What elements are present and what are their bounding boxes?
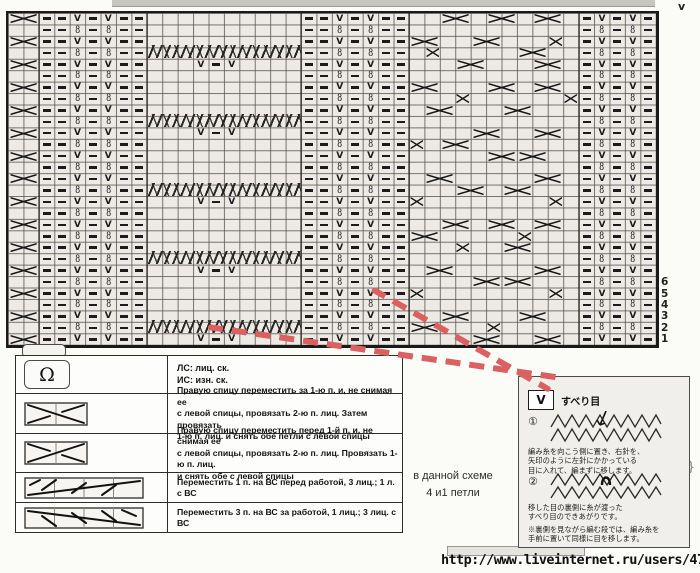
purl-dash-mark [209, 128, 224, 139]
purl-dash-mark [116, 185, 131, 196]
purl-dash-mark [317, 105, 332, 116]
slip-chain-mark: V [101, 105, 116, 116]
cable-braid-mark [147, 251, 301, 264]
slip-chain-mark: 8 [334, 299, 346, 310]
cross-2-front-icon [24, 441, 88, 465]
purl-dash-mark [347, 36, 362, 47]
purl-dash-mark [347, 276, 362, 287]
purl-dash-mark [39, 219, 54, 230]
purl-dash-mark [378, 219, 393, 230]
purl-dash-mark [579, 24, 594, 35]
slip-chain-mark: V [594, 36, 609, 47]
slip-chain-mark: V [70, 13, 85, 24]
slip-chain-mark: V [101, 82, 116, 93]
purl-dash-mark [347, 82, 362, 93]
purl-dash-mark [39, 93, 54, 104]
purl-dash-mark [39, 36, 54, 47]
purl-dash-mark [131, 253, 146, 264]
purl-dash-mark [610, 13, 625, 24]
purl-dash-mark [301, 128, 316, 139]
slip-chain-mark: V [70, 105, 85, 116]
purl-dash-mark [116, 139, 131, 150]
cross-stitch-mark [440, 139, 471, 150]
purl-dash-mark [641, 93, 656, 104]
purl-dash-mark [641, 265, 656, 276]
slip-chain-mark: 8 [596, 276, 608, 287]
purl-dash-mark [610, 47, 625, 58]
purl-dash-mark [317, 128, 332, 139]
slip-chain-mark: V [594, 82, 609, 93]
purl-dash-mark [317, 93, 332, 104]
purl-dash-mark [85, 208, 100, 219]
cross-stitch-mark [440, 311, 471, 322]
purl-dash-mark [579, 265, 594, 276]
purl-dash-mark [116, 276, 131, 287]
purl-dash-mark [301, 59, 316, 70]
slip-chain-mark: 8 [102, 24, 114, 35]
slip-chain-mark: V [70, 173, 85, 184]
purl-dash-mark [54, 139, 69, 150]
slip-chain-mark: V [363, 13, 378, 24]
edge-cross-mark [8, 59, 39, 70]
slip-chain-mark: V [363, 150, 378, 161]
slip-chain-mark: V [101, 242, 116, 253]
slip-chain-mark: V [101, 173, 116, 184]
slip-chain-mark: V [70, 311, 85, 322]
purl-dash-mark [347, 59, 362, 70]
purl-dash-mark [610, 288, 625, 299]
slip-chain-mark: V [70, 265, 85, 276]
purl-dash-mark [131, 128, 146, 139]
purl-dash-mark [641, 185, 656, 196]
slip-chain-mark: 8 [596, 185, 608, 196]
purl-dash-mark [347, 242, 362, 253]
edge-cross-mark [8, 128, 39, 139]
purl-dash-mark [641, 311, 656, 322]
purl-dash-mark [301, 47, 316, 58]
slip-chain-mark: V [332, 265, 347, 276]
purl-dash-mark [378, 128, 393, 139]
purl-dash-mark [301, 13, 316, 24]
purl-dash-mark [39, 311, 54, 322]
purl-dash-mark [85, 150, 100, 161]
slip-chain-mark: V [625, 173, 640, 184]
purl-dash-mark [394, 70, 409, 81]
purl-dash-mark [378, 334, 393, 345]
slip-chain-mark: V [101, 150, 116, 161]
cross-stitch-mark [548, 288, 563, 299]
section-divider-line [300, 13, 302, 345]
purl-dash-mark [579, 231, 594, 242]
purl-dash-mark [209, 265, 224, 276]
purl-dash-mark [610, 219, 625, 230]
purl-dash-mark [394, 36, 409, 47]
slip-chain-mark: 8 [334, 185, 346, 196]
purl-dash-mark [610, 311, 625, 322]
slip-chain-mark: 8 [364, 322, 376, 333]
cross-stitch-mark [409, 196, 424, 207]
purl-dash-mark [131, 139, 146, 150]
purl-dash-mark [301, 70, 316, 81]
cross-stitch-mark [471, 276, 502, 287]
purl-dash-mark [579, 196, 594, 207]
cross-stitch-mark [425, 105, 456, 116]
purl-dash-mark [54, 196, 69, 207]
purl-dash-mark [131, 24, 146, 35]
edge-cross-mark [8, 288, 39, 299]
purl-dash-mark [39, 196, 54, 207]
cable-3-over-1-icon [24, 507, 144, 529]
purl-dash-mark [116, 105, 131, 116]
purl-dash-mark [641, 59, 656, 70]
purl-dash-mark [131, 276, 146, 287]
purl-dash-mark [610, 70, 625, 81]
purl-dash-mark [116, 299, 131, 310]
purl-dash-mark [394, 128, 409, 139]
slip-chain-mark: 8 [71, 47, 83, 58]
slip-chain-mark: 8 [71, 231, 83, 242]
purl-dash-mark [301, 150, 316, 161]
purl-dash-mark [39, 288, 54, 299]
purl-dash-mark [85, 139, 100, 150]
purl-dash-mark [39, 299, 54, 310]
slip-chain-mark: 8 [334, 93, 346, 104]
slip-chain-mark: 8 [71, 116, 83, 127]
purl-dash-mark [579, 105, 594, 116]
slip-chain-mark: 8 [102, 299, 114, 310]
slip-v-mark: V [193, 128, 208, 139]
purl-dash-mark [579, 116, 594, 127]
slip-chain-mark: 8 [334, 231, 346, 242]
loop-stitch-symbol: Ω [16, 356, 168, 393]
slip-chain-mark: 8 [627, 24, 639, 35]
purl-dash-mark [301, 299, 316, 310]
row-number-label: 3 [661, 311, 679, 322]
section-divider-line [578, 13, 580, 345]
purl-dash-mark [579, 13, 594, 24]
purl-dash-mark [85, 276, 100, 287]
slip-chain-mark: 8 [596, 231, 608, 242]
cross-stitch-mark [533, 13, 564, 24]
slip-chain-mark: V [363, 265, 378, 276]
purl-dash-mark [131, 231, 146, 242]
slip-chain-mark: 8 [627, 185, 639, 196]
slip-chain-mark: V [625, 311, 640, 322]
legend-row: Переместить 3 п. на ВС за работой, 1 лиц… [16, 502, 402, 532]
purl-dash-mark [394, 59, 409, 70]
slip-chain-mark: V [332, 105, 347, 116]
purl-dash-mark [641, 13, 656, 24]
purl-dash-mark [610, 93, 625, 104]
purl-dash-mark [317, 253, 332, 264]
purl-dash-mark [347, 334, 362, 345]
purl-dash-mark [641, 276, 656, 287]
purl-dash-mark [317, 36, 332, 47]
purl-dash-mark [347, 219, 362, 230]
purl-dash-mark [610, 265, 625, 276]
purl-dash-mark [378, 173, 393, 184]
purl-dash-mark [116, 47, 131, 58]
purl-dash-mark [116, 265, 131, 276]
slip-chain-mark: 8 [102, 253, 114, 264]
purl-dash-mark [579, 185, 594, 196]
purl-dash-mark [131, 185, 146, 196]
purl-dash-mark [579, 36, 594, 47]
purl-dash-mark [54, 299, 69, 310]
purl-dash-mark [641, 128, 656, 139]
slip-chain-mark: 8 [334, 70, 346, 81]
purl-dash-mark [610, 105, 625, 116]
slip-chain-mark: 8 [334, 276, 346, 287]
scheme-note: в данной схеме 4 и1 петли [396, 468, 510, 501]
section-divider-line [146, 13, 148, 345]
purl-dash-mark [301, 242, 316, 253]
legend-text: Правую спицу переместить перед 1-й п. и,… [168, 434, 402, 472]
purl-dash-mark [116, 219, 131, 230]
cross-stitch-mark [409, 288, 424, 299]
cable-1-over-3-symbol [16, 473, 168, 502]
purl-dash-mark [39, 150, 54, 161]
slip-chain-mark: 8 [627, 231, 639, 242]
slip-chain-mark: V [101, 265, 116, 276]
slip-chain-mark: 8 [364, 185, 376, 196]
purl-dash-mark [394, 139, 409, 150]
slip-chain-mark: V [594, 311, 609, 322]
purl-dash-mark [378, 276, 393, 287]
edge-cross-mark [8, 36, 39, 47]
slip-chain-mark: 8 [596, 253, 608, 264]
purl-dash-mark [39, 128, 54, 139]
cross-stitch-mark [517, 150, 548, 161]
slip-chain-mark: V [101, 13, 116, 24]
purl-dash-mark [610, 173, 625, 184]
slip-chain-mark: 8 [334, 162, 346, 173]
slip-v-mark: V [224, 59, 239, 70]
edge-cross-mark [8, 219, 39, 230]
slip-chain-mark: 8 [102, 162, 114, 173]
purl-dash-mark [579, 82, 594, 93]
slip-chain-mark: 8 [364, 47, 376, 58]
cross-stitch-mark [517, 231, 532, 242]
purl-dash-mark [54, 311, 69, 322]
purl-dash-mark [610, 59, 625, 70]
purl-dash-mark [579, 242, 594, 253]
purl-dash-mark [394, 265, 409, 276]
slip-chain-mark: V [363, 173, 378, 184]
purl-dash-mark [579, 253, 594, 264]
edge-cross-mark [8, 265, 39, 276]
purl-dash-mark [116, 253, 131, 264]
cross-stitch-mark [548, 196, 563, 207]
purl-dash-mark [301, 36, 316, 47]
purl-dash-mark [394, 116, 409, 127]
purl-dash-mark [131, 208, 146, 219]
purl-dash-mark [378, 24, 393, 35]
purl-dash-mark [301, 139, 316, 150]
row-number-label: 4 [661, 299, 679, 310]
purl-dash-mark [131, 13, 146, 24]
purl-dash-mark [301, 116, 316, 127]
purl-dash-mark [394, 185, 409, 196]
slip-chain-mark: V [363, 311, 378, 322]
purl-dash-mark [394, 47, 409, 58]
edge-cross-mark [8, 242, 39, 253]
purl-dash-mark [116, 288, 131, 299]
purl-dash-mark [394, 231, 409, 242]
slip-chain-mark: 8 [364, 162, 376, 173]
purl-dash-mark [378, 265, 393, 276]
purl-dash-mark [131, 311, 146, 322]
purl-dash-mark [641, 47, 656, 58]
slip-chain-mark: 8 [364, 276, 376, 287]
slip-chain-mark: 8 [71, 185, 83, 196]
slip-chain-mark: V [363, 334, 378, 345]
purl-dash-mark [610, 139, 625, 150]
purl-dash-mark [116, 82, 131, 93]
purl-dash-mark [54, 116, 69, 127]
slip-chain-mark: V [625, 219, 640, 230]
purl-dash-mark [39, 173, 54, 184]
purl-dash-mark [54, 105, 69, 116]
slip-chain-mark: V [594, 150, 609, 161]
slip-v-mark: V [224, 265, 239, 276]
slip-chain-mark: 8 [334, 116, 346, 127]
purl-dash-mark [317, 311, 332, 322]
purl-dash-mark [610, 24, 625, 35]
purl-dash-mark [54, 128, 69, 139]
purl-dash-mark [131, 162, 146, 173]
purl-dash-mark [394, 93, 409, 104]
purl-dash-mark [131, 150, 146, 161]
purl-dash-mark [347, 253, 362, 264]
purl-dash-mark [641, 253, 656, 264]
slip-chain-mark: 8 [71, 162, 83, 173]
legend-text: Переместить 3 п. на ВС за работой, 1 лиц… [168, 503, 402, 532]
purl-dash-mark [579, 173, 594, 184]
purl-dash-mark [85, 231, 100, 242]
loop-stitch-icon: Ω [24, 360, 70, 389]
slip-chain-mark: V [101, 334, 116, 345]
cross-stitch-mark [486, 219, 517, 230]
purl-dash-mark [209, 59, 224, 70]
purl-dash-mark [394, 162, 409, 173]
slip-stitch-symbol-box: V [528, 390, 554, 410]
slip-chain-mark: V [101, 196, 116, 207]
slip-chain-mark: V [332, 196, 347, 207]
purl-dash-mark [394, 322, 409, 333]
purl-dash-mark [39, 253, 54, 264]
slip-chain-mark: V [363, 59, 378, 70]
purl-dash-mark [39, 208, 54, 219]
slip-chain-mark: V [70, 334, 85, 345]
slip-chain-mark: 8 [71, 299, 83, 310]
purl-dash-mark [85, 311, 100, 322]
purl-dash-mark [317, 150, 332, 161]
slip-chain-mark: 8 [334, 47, 346, 58]
slip-chain-mark: V [101, 288, 116, 299]
slip-chain-mark: V [363, 196, 378, 207]
purl-dash-mark [131, 219, 146, 230]
purl-dash-mark [85, 13, 100, 24]
purl-dash-mark [394, 288, 409, 299]
purl-dash-mark [610, 82, 625, 93]
purl-dash-mark [317, 196, 332, 207]
purl-dash-mark [301, 196, 316, 207]
purl-dash-mark [579, 150, 594, 161]
purl-dash-mark [378, 116, 393, 127]
purl-dash-mark [39, 139, 54, 150]
slip-chain-mark: 8 [102, 47, 114, 58]
cross-stitch-mark [502, 242, 533, 253]
purl-dash-mark [394, 196, 409, 207]
slip-chain-mark: V [70, 219, 85, 230]
purl-dash-mark [317, 82, 332, 93]
stitch-illustration-2 [549, 471, 663, 501]
slip-chain-mark: 8 [71, 93, 83, 104]
cross-stitch-mark [409, 139, 424, 150]
purl-dash-mark [301, 82, 316, 93]
slip-chain-mark: 8 [364, 231, 376, 242]
purl-dash-mark [378, 105, 393, 116]
slip-chain-mark: 8 [627, 299, 639, 310]
purl-dash-mark [54, 162, 69, 173]
slip-chain-mark: V [332, 219, 347, 230]
slip-chain-mark: 8 [364, 208, 376, 219]
slip-chain-mark: V [625, 150, 640, 161]
purl-dash-mark [610, 128, 625, 139]
cross-stitch-mark [533, 219, 564, 230]
purl-dash-mark [301, 173, 316, 184]
purl-dash-mark [378, 185, 393, 196]
purl-dash-mark [394, 253, 409, 264]
purl-dash-mark [394, 219, 409, 230]
purl-dash-mark [378, 139, 393, 150]
purl-dash-mark [641, 242, 656, 253]
slip-chain-mark: 8 [71, 24, 83, 35]
slip-chain-mark: V [70, 36, 85, 47]
purl-dash-mark [347, 288, 362, 299]
purl-dash-mark [378, 150, 393, 161]
cross-stitch-mark [486, 13, 517, 24]
purl-dash-mark [641, 288, 656, 299]
cross-stitch-mark [563, 93, 578, 104]
legend-text: Переместить 1 п. на ВС перед работой, 3 … [168, 473, 402, 502]
scan-cutoff-strip [112, 0, 655, 7]
purl-dash-mark [39, 265, 54, 276]
purl-dash-mark [317, 13, 332, 24]
slip-chain-mark: V [363, 128, 378, 139]
purl-dash-mark [301, 253, 316, 264]
purl-dash-mark [378, 82, 393, 93]
purl-dash-mark [131, 242, 146, 253]
purl-dash-mark [131, 70, 146, 81]
purl-dash-mark [394, 208, 409, 219]
purl-dash-mark [347, 185, 362, 196]
slip-chain-mark: V [101, 59, 116, 70]
purl-dash-mark [116, 13, 131, 24]
purl-dash-mark [85, 70, 100, 81]
section-divider-line [38, 13, 40, 345]
purl-dash-mark [301, 185, 316, 196]
slip-chain-mark: 8 [364, 116, 376, 127]
slip-chain-mark: V [332, 242, 347, 253]
purl-dash-mark [641, 196, 656, 207]
purl-dash-mark [347, 13, 362, 24]
purl-dash-mark [347, 150, 362, 161]
legend-row: Переместить 1 п. на ВС перед работой, 3 … [16, 472, 402, 502]
slip-chain-mark: 8 [364, 24, 376, 35]
purl-dash-mark [85, 242, 100, 253]
